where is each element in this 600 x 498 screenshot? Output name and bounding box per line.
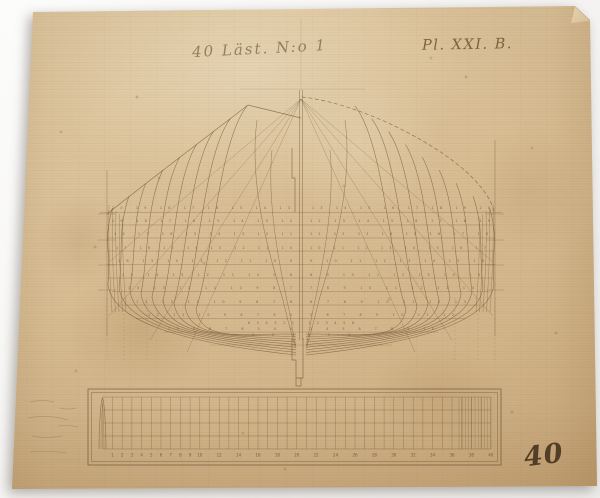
paper-sheet: 20 19 18 17 16 15 14 1313 14 15 16 17 18… [0,0,600,498]
vignette-overlay [0,0,600,498]
scan-background: 20 19 18 17 16 15 14 1313 14 15 16 17 18… [0,0,600,498]
paper-shadow: 20 19 18 17 16 15 14 1313 14 15 16 17 18… [0,0,600,498]
